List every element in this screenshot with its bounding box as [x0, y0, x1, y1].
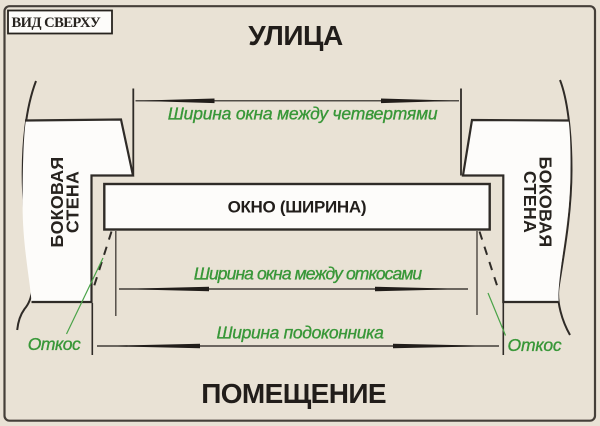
svg-text:Откос: Откос [28, 334, 81, 354]
svg-text:СТЕНА: СТЕНА [62, 171, 82, 233]
svg-text:Ширина окна между откосами: Ширина окна между откосами [194, 264, 423, 284]
svg-text:ОКНО (ШИРИНА): ОКНО (ШИРИНА) [228, 198, 367, 217]
svg-text:Ширина окна между четвертями: Ширина окна между четвертями [168, 104, 438, 124]
svg-text:СТЕНА: СТЕНА [520, 171, 540, 233]
svg-text:УЛИЦА: УЛИЦА [248, 20, 343, 51]
svg-text:ВИД СВЕРХУ: ВИД СВЕРХУ [12, 15, 102, 31]
svg-text:ПОМЕЩЕНИЕ: ПОМЕЩЕНИЕ [201, 378, 386, 409]
svg-text:Ширина подоконника: Ширина подоконника [217, 323, 385, 343]
svg-text:Откос: Откос [508, 335, 562, 355]
